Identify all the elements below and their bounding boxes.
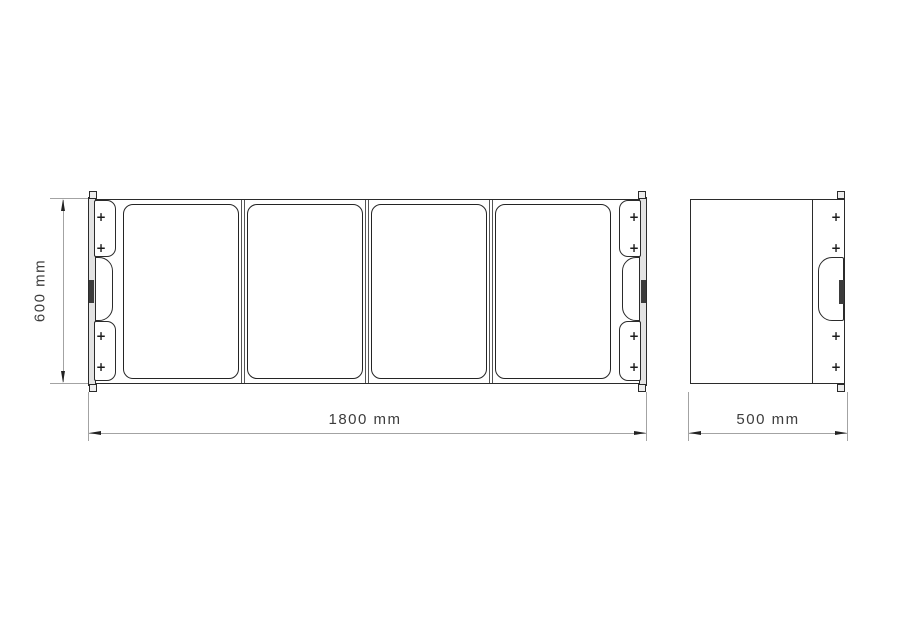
brand-label — [89, 280, 94, 303]
left-bottom-notch — [89, 384, 97, 392]
dimension-line-vertical — [63, 200, 64, 382]
hinge-line — [492, 200, 493, 383]
extension-tick-top — [50, 198, 88, 199]
arrowhead-right-icon — [634, 431, 646, 435]
snap-fastener-icon: + — [830, 360, 842, 374]
right-bottom-notch — [638, 384, 646, 392]
left-top-notch — [89, 191, 97, 199]
snap-fastener-icon: + — [628, 329, 640, 343]
arrowhead-right-icon — [835, 431, 847, 435]
hinge-line — [365, 200, 366, 383]
hinge-line — [244, 200, 245, 383]
snap-fastener-icon: + — [95, 360, 107, 374]
panel-2 — [247, 204, 363, 379]
dimension-label-side-width: 500 mm — [688, 411, 848, 428]
hinge-line — [489, 200, 490, 383]
brand-label — [641, 280, 646, 303]
snap-fastener-icon: + — [95, 241, 107, 255]
snap-fastener-icon: + — [830, 210, 842, 224]
snap-fastener-icon: + — [830, 329, 842, 343]
side-inner-edge-line — [812, 200, 813, 383]
extension-tick-bottom — [50, 383, 88, 384]
panel-1 — [123, 204, 239, 379]
dimension-label-height: 600 mm — [32, 245, 49, 337]
side-top-notch — [837, 191, 845, 199]
brand-label — [839, 280, 844, 304]
snap-fastener-icon: + — [95, 329, 107, 343]
arrowhead-up-icon — [61, 199, 65, 211]
side-bottom-notch — [837, 384, 845, 392]
dimension-line-horizontal — [88, 433, 647, 434]
dimension-label-front-width: 1800 mm — [285, 411, 445, 428]
panel-3 — [371, 204, 487, 379]
snap-fastener-icon: + — [628, 241, 640, 255]
snap-fastener-icon: + — [830, 241, 842, 255]
right-top-notch — [638, 191, 646, 199]
dimension-line-horizontal — [688, 433, 848, 434]
technical-drawing: + + + + + + + + + + + + 600 mm — [0, 0, 900, 636]
snap-fastener-icon: + — [95, 210, 107, 224]
snap-fastener-icon: + — [628, 210, 640, 224]
hinge-line — [368, 200, 369, 383]
hinge-line — [241, 200, 242, 383]
arrowhead-down-icon — [61, 371, 65, 383]
arrowhead-left-icon — [689, 431, 701, 435]
snap-fastener-icon: + — [628, 360, 640, 374]
arrowhead-left-icon — [89, 431, 101, 435]
panel-4 — [495, 204, 611, 379]
